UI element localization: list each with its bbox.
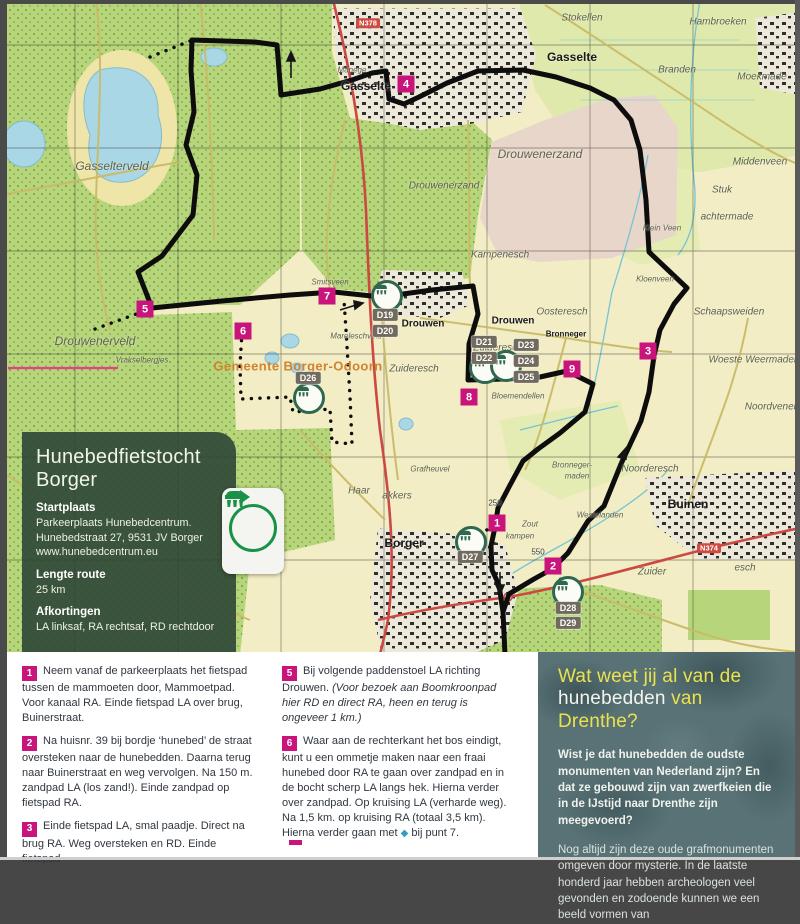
section-heading: Startplaats [36,502,222,514]
map-label: Borger [384,536,423,550]
section-heading: Afkortingen [36,606,222,618]
road-shield: N374 [697,543,721,553]
map-label: Vrakselbergjes [116,356,169,365]
d-marker-label: D22 [472,352,497,364]
map-label: Smitsveen [311,278,348,287]
waypoint-badge: 6 [235,323,252,340]
right-arrow-glyph [222,488,252,506]
map-label: kampen [506,532,534,541]
map-label: Bronneger [546,330,586,339]
map-label: Zuideresch [389,364,438,375]
d-marker-label: D21 [472,336,497,348]
instruction-number-badge: 1 [22,666,37,681]
instruction-number-badge: 2 [22,736,37,751]
d-marker-label: D19 [373,309,398,321]
map-label: Gasselterveld [75,159,148,173]
map-label: Bloemendellen [492,392,545,401]
map-label: akkers [382,491,411,502]
map-label: Oosteresch [536,307,587,318]
section-line: www.hunebedcentrum.eu [36,545,222,560]
dolmen-glyph [555,579,570,591]
page-edge-left [0,0,7,860]
section-line: LA linksaf, RA rechtsaf, RD rechtdoor [36,620,222,635]
instruction-text: bij punt 7. [408,827,459,839]
instruction-number-badge: 3 [22,822,37,837]
map-label: Woeste Weermaden [709,355,800,366]
map-label: Grafheuvel [410,465,449,474]
map-label: Manege [338,66,367,75]
hunebed-icon [371,280,403,312]
section-heading: Lengte route [36,569,222,581]
instruction-item: 5Bij volgende paddenstoel LA richting Dr… [282,664,513,726]
map-label: Drouwenerveld [55,334,136,348]
dolmen-glyph [458,529,473,541]
hunebedcentrum-logo-icon [229,504,277,552]
map-label: Noordvenen [745,402,799,413]
leaflet-page: GasselterveldGasselteGasselteStokellenHa… [0,0,800,860]
map-label: Gasselte [547,50,597,64]
sidebar-paragraph: Nog altijd zijn deze oude grafmonumenten… [558,842,775,924]
topo-map: GasselterveldGasselteGasselteStokellenHa… [0,0,800,655]
instruction-text: Na huisnr. 39 bij bordje ‘hunebed’ de st… [22,735,253,809]
sidebar-panel: Wat weet jij al van de hunebedden van Dr… [538,652,795,860]
d-marker-label: D26 [296,372,321,384]
route-info-section: Lengte route 25 km [36,569,222,598]
map-label: Middenveen [733,157,787,168]
d-marker-label: D25 [514,371,539,383]
section-line: Hunebedstraat 27, 9531 JV Borger [36,531,222,546]
dolmen-glyph [374,283,389,295]
start-point-card [222,488,284,574]
route-info-section: Startplaats Parkeerplaats Hunebedcentrum… [36,502,222,560]
waypoint-badge: 8 [461,389,478,406]
instruction-item: 2Na huisnr. 39 bij bordje ‘hunebed’ de s… [22,734,253,811]
map-label: 550 [531,548,544,557]
map-label: Buinen [668,497,709,511]
dolmen-glyph [296,385,311,397]
d-marker-label: D23 [514,339,539,351]
instructions-section: 1Neem vanaf de parkeerplaats het fietspa… [0,652,800,860]
map-label: Drouwenerzand [409,181,480,192]
d-marker-label: D28 [556,602,581,614]
map-label: Schaapsweiden [694,307,765,318]
map-label: Stokellen [561,13,602,24]
waypoint-badge: 7 [319,288,336,305]
instructions-column-2: 5Bij volgende paddenstoel LA richting Dr… [282,664,513,849]
map-label: 250 [488,499,501,508]
d-marker-label: D29 [556,617,581,629]
map-label: Drouwen [402,319,445,330]
map-label: Kampenesch [471,250,529,261]
instruction-item: 1Neem vanaf de parkeerplaats het fietspa… [22,664,253,726]
map-label: Klein Veen [643,224,681,233]
route-info-section: Afkortingen LA linksaf, RA rechtsaf, RD … [36,606,222,635]
hunebed-icon [293,382,325,414]
map-label: Haar [348,486,370,497]
map-label: achtermade [701,212,754,223]
instruction-number-badge: 5 [282,666,297,681]
route-info-sections: Startplaats Parkeerplaats Hunebedcentrum… [36,502,222,635]
map-label: Hambroeken [689,17,746,28]
map-label: Bronneger- [552,461,592,470]
map-label: Zout [522,520,538,529]
map-label: maden [565,472,589,481]
map-label: Drouwen [492,316,535,327]
instruction-item: 6Waar aan de rechterkant het bos eindigt… [282,734,513,841]
section-line: 25 km [36,583,222,598]
road-shield: N378 [356,18,380,28]
waypoint-badge: 5 [137,301,154,318]
section-line: Parkeerplaats Hunebedcentrum. [36,516,222,531]
sidebar-paragraph-bold: Wist je dat hunebedden de oudste monumen… [558,747,775,829]
d-marker-label: D20 [373,325,398,337]
instruction-text: Waar aan de rechterkant het bos eindigt,… [282,735,506,839]
map-label: Branden [658,65,696,76]
d-marker-label: D27 [458,551,483,563]
sidebar-title-white: hunebedden [558,688,666,709]
map-label: esch [734,563,755,574]
waypoint-badge: 1 [489,515,506,532]
sidebar-title: Wat weet jij al van de hunebedden van Dr… [558,666,775,733]
instruction-text: Neem vanaf de parkeerplaats het fietspad… [22,665,247,724]
map-label: Gasselte [341,79,391,93]
map-label: Westelanden [577,511,624,520]
route-info-panel: Hunebedfietstocht Borger Startplaats Par… [22,432,236,652]
waypoint-badge: 9 [564,361,581,378]
map-label: Stuk [712,185,732,196]
page-edge-top [0,0,800,4]
waypoint-badge: 3 [640,343,657,360]
waypoint-badge: 2 [545,558,562,575]
map-label: Drouwenerzand [498,147,583,161]
map-label: Kloenveen [636,275,674,284]
waypoint-badge: 4 [398,76,415,93]
page-edge-right [795,0,800,860]
map-label: Zuider [638,567,666,578]
instructions-column-1: 1Neem vanaf de parkeerplaats het fietspa… [22,664,253,874]
sidebar-title-line1: Wat weet jij al van de [558,666,741,687]
d-marker-label: D24 [514,355,539,367]
map-label: Moekmade [737,72,786,83]
map-label: Noorderesch [621,464,678,475]
route-title: Hunebedfietstocht Borger [36,446,222,492]
instruction-number-badge: 6 [282,736,297,751]
